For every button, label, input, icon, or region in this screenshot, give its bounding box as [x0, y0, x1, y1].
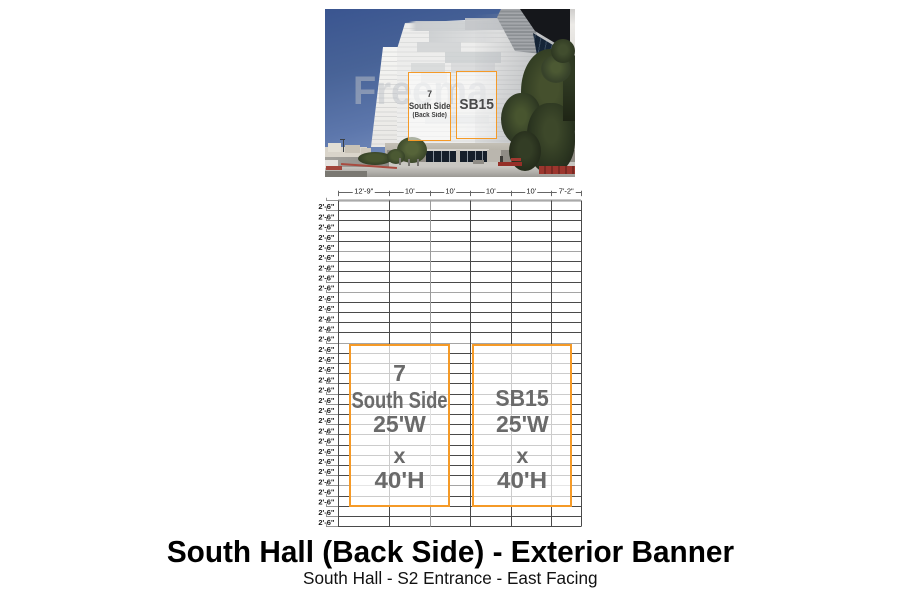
svg-text:2'-6": 2'-6"	[318, 335, 335, 344]
svg-text:2'-6": 2'-6"	[318, 345, 335, 354]
svg-text:2'-6": 2'-6"	[318, 324, 335, 333]
svg-text:2'-6": 2'-6"	[318, 508, 335, 517]
svg-text:2'-6": 2'-6"	[318, 202, 335, 211]
svg-text:2'-6": 2'-6"	[318, 518, 335, 527]
svg-text:2'-6": 2'-6"	[318, 304, 335, 313]
svg-text:7'-2": 7'-2"	[559, 187, 574, 196]
svg-text:2'-6": 2'-6"	[318, 223, 335, 232]
svg-text:2'-6": 2'-6"	[318, 284, 335, 293]
svg-text:2'-6": 2'-6"	[318, 274, 335, 283]
svg-text:2'-6": 2'-6"	[318, 253, 335, 262]
svg-text:10': 10'	[405, 187, 415, 196]
svg-text:12'-9": 12'-9"	[354, 187, 373, 196]
svg-text:2'-6": 2'-6"	[318, 233, 335, 242]
svg-text:2'-6": 2'-6"	[318, 212, 335, 221]
svg-text:2'-6": 2'-6"	[318, 243, 335, 252]
svg-text:2'-6": 2'-6"	[318, 294, 335, 303]
svg-text:2'-6": 2'-6"	[318, 314, 335, 323]
svg-text:10': 10'	[486, 187, 496, 196]
svg-text:2'-6": 2'-6"	[318, 263, 335, 272]
svg-text:10': 10'	[445, 187, 455, 196]
svg-text:2'-6": 2'-6"	[318, 498, 335, 507]
svg-text:10': 10'	[526, 187, 536, 196]
